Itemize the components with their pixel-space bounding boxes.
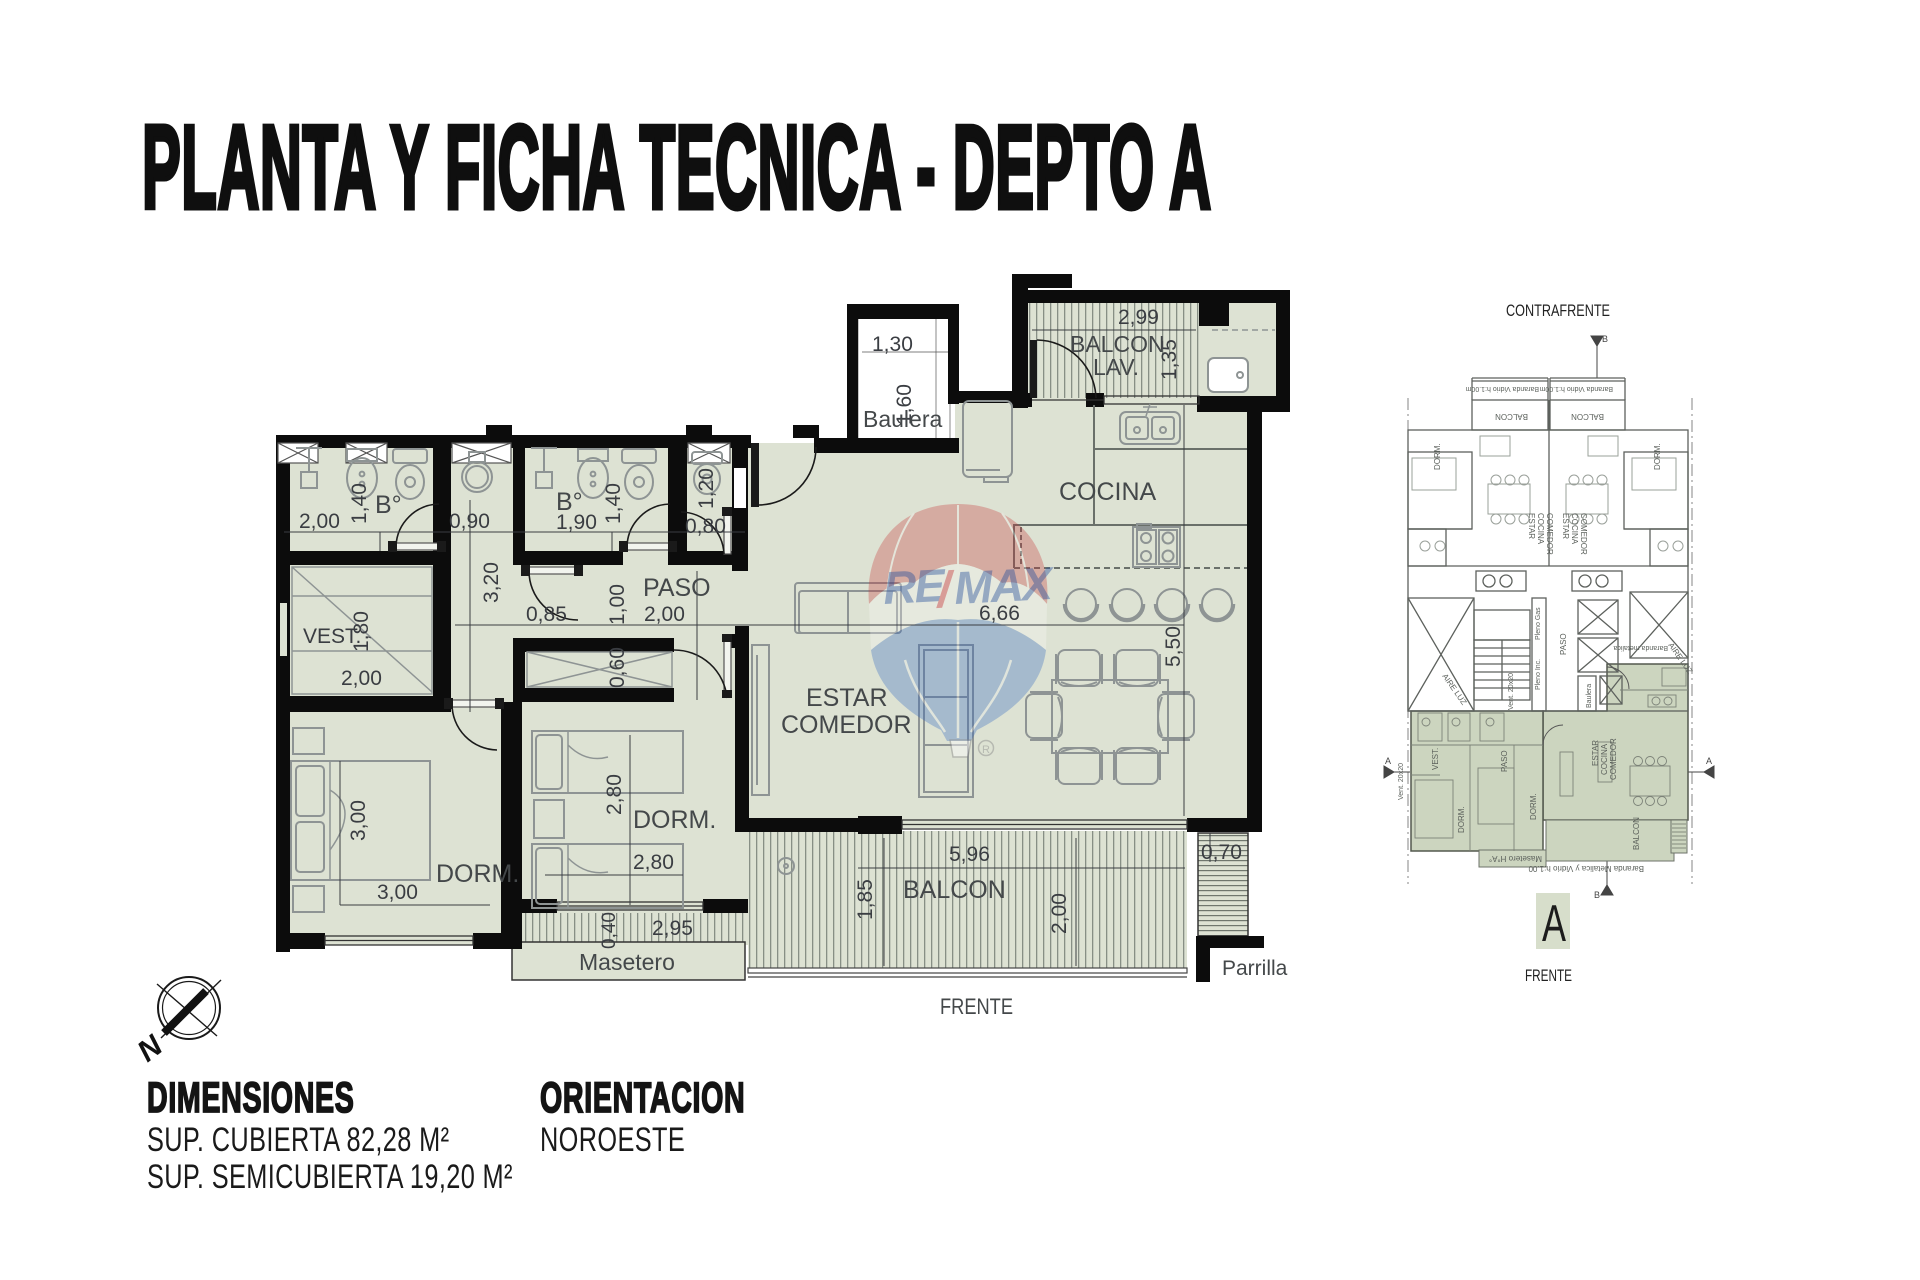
svg-text:Vent. 20x20: Vent. 20x20 — [1508, 673, 1515, 710]
svg-text:1,80: 1,80 — [350, 611, 373, 652]
svg-text:BALCON: BALCON — [903, 876, 1006, 904]
svg-text:A: A — [1385, 756, 1391, 766]
svg-text:0,40: 0,40 — [599, 912, 620, 949]
svg-text:DORM.: DORM. — [1529, 793, 1538, 820]
svg-text:FRENTE: FRENTE — [1525, 966, 1572, 985]
svg-text:LAV.: LAV. — [1093, 354, 1139, 380]
svg-text:3,00: 3,00 — [347, 800, 370, 841]
svg-text:2,95: 2,95 — [652, 917, 693, 940]
svg-text:1,20: 1,20 — [695, 468, 718, 509]
svg-text:COMEDOR: COMEDOR — [781, 711, 912, 739]
svg-text:FRENTE: FRENTE — [940, 996, 1013, 1020]
svg-text:6,66: 6,66 — [979, 602, 1020, 625]
svg-text:2,00: 2,00 — [341, 667, 382, 690]
svg-text:0,90: 0,90 — [449, 510, 490, 533]
svg-text:PASO: PASO — [1500, 750, 1509, 772]
svg-text:BALCON: BALCON — [1632, 817, 1641, 850]
svg-text:2,80: 2,80 — [603, 774, 626, 815]
svg-text:Baranda Vidrio h:1.00m: Baranda Vidrio h:1.00m — [1539, 385, 1613, 392]
svg-text:2,80: 2,80 — [633, 851, 674, 874]
svg-text:PASO: PASO — [1559, 633, 1568, 655]
svg-text:1,85: 1,85 — [854, 879, 877, 920]
svg-text:B: B — [1594, 890, 1600, 900]
svg-text:Vent. 20x20: Vent. 20x20 — [1398, 763, 1405, 800]
svg-text:Baranda Vidrio h:1.00m: Baranda Vidrio h:1.00m — [1465, 385, 1539, 392]
svg-text:1,30: 1,30 — [872, 333, 913, 356]
svg-text:COMEDOR: COMEDOR — [1545, 513, 1554, 555]
svg-text:COCINA: COCINA — [1570, 513, 1579, 545]
svg-text:DORM.: DORM. — [436, 860, 519, 888]
svg-text:VEST.: VEST. — [1431, 748, 1440, 770]
svg-text:ESTAR: ESTAR — [1591, 740, 1600, 766]
svg-text:0,80: 0,80 — [685, 515, 726, 538]
svg-text:Baulera: Baulera — [863, 406, 942, 432]
svg-text:DORM.: DORM. — [1457, 806, 1466, 833]
svg-text:Baranda metalica: Baranda metalica — [1613, 644, 1668, 651]
svg-text:DORM.: DORM. — [1433, 443, 1442, 470]
svg-text:1,00: 1,00 — [606, 584, 629, 625]
svg-text:2,99: 2,99 — [1118, 306, 1159, 329]
svg-text:COMEDOR: COMEDOR — [1609, 738, 1618, 780]
svg-text:1,40: 1,40 — [348, 483, 371, 524]
svg-text:1,40: 1,40 — [602, 483, 625, 524]
svg-text:R: R — [982, 744, 990, 756]
svg-text:0,85: 0,85 — [526, 603, 567, 626]
svg-text:PASO: PASO — [643, 574, 711, 602]
svg-text:DORM.: DORM. — [633, 806, 716, 834]
svg-text:Masetero: Masetero — [579, 949, 675, 975]
svg-text:Parrilla: Parrilla — [1222, 957, 1288, 980]
svg-text:CONTRAFRENTE: CONTRAFRENTE — [1506, 301, 1610, 320]
svg-text:2,00: 2,00 — [299, 510, 340, 533]
svg-text:Pleno Gas: Pleno Gas — [1535, 607, 1542, 640]
svg-text:COCINA: COCINA — [1600, 743, 1609, 775]
svg-text:B°: B° — [556, 488, 583, 516]
svg-text:COMEDOR: COMEDOR — [1579, 513, 1588, 555]
svg-text:B: B — [1602, 334, 1608, 344]
svg-text:2,00: 2,00 — [644, 603, 685, 626]
svg-text:DORM.: DORM. — [1653, 443, 1662, 470]
svg-text:B°: B° — [375, 491, 402, 519]
svg-text:BALCON: BALCON — [1495, 412, 1528, 421]
svg-text:ESTAR: ESTAR — [1561, 513, 1570, 539]
svg-text:ESTAR: ESTAR — [1527, 513, 1536, 539]
svg-text:5,96: 5,96 — [949, 843, 990, 866]
svg-text:COCINA: COCINA — [1059, 478, 1157, 506]
svg-text:0,70: 0,70 — [1201, 841, 1242, 864]
svg-text:3,00: 3,00 — [377, 881, 418, 904]
svg-text:BALCON: BALCON — [1571, 412, 1604, 421]
svg-text:Masetero H°A°: Masetero H°A° — [1489, 854, 1542, 863]
svg-text:A: A — [1706, 756, 1712, 766]
svg-text:2,00: 2,00 — [1048, 893, 1071, 934]
svg-text:5,50: 5,50 — [1162, 626, 1185, 667]
svg-text:COCINA: COCINA — [1536, 513, 1545, 545]
svg-text:Baranda Metalica y Vidrio h:1.: Baranda Metalica y Vidrio h:1.00 — [1528, 864, 1644, 873]
svg-text:0,60: 0,60 — [606, 647, 629, 688]
svg-text:Pleno Inc.: Pleno Inc. — [1535, 659, 1542, 690]
svg-text:A: A — [1542, 895, 1566, 953]
svg-text:ESTAR: ESTAR — [806, 684, 888, 712]
svg-text:3,20: 3,20 — [480, 562, 503, 603]
svg-text:Baulera: Baulera — [1586, 684, 1593, 708]
